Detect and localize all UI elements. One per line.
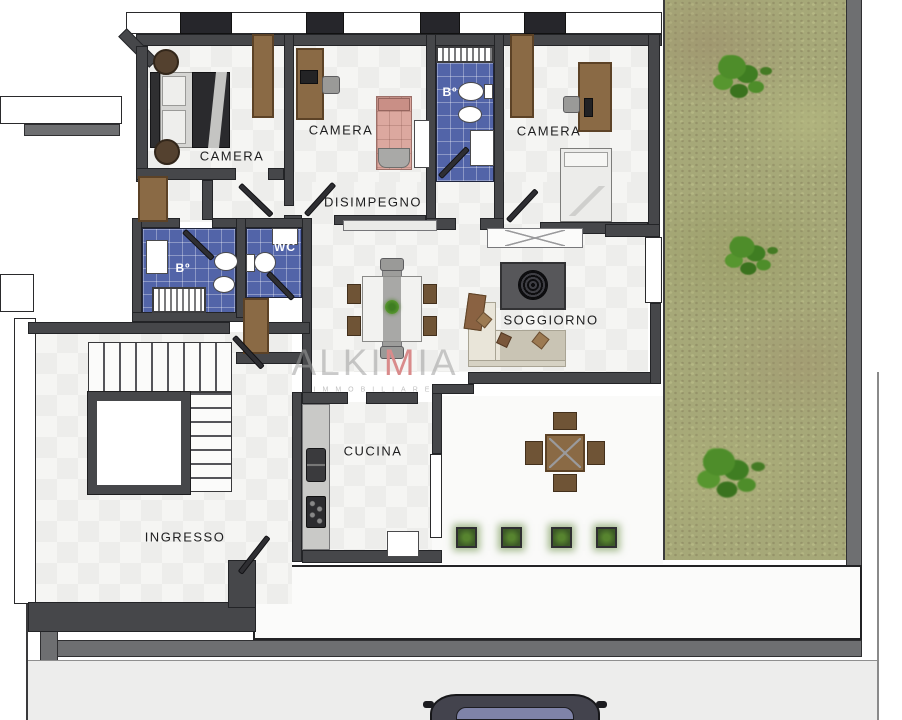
- planter: [456, 527, 477, 548]
- wall-camera3-right: [648, 34, 660, 232]
- desk-chair: [563, 96, 580, 113]
- outdoor-chair: [553, 474, 577, 492]
- staircase-upper-flight: [88, 342, 232, 392]
- bidet-bagno1: [458, 106, 482, 123]
- wall-bagno1-camera3: [494, 34, 504, 224]
- window-kitchen-right: [430, 454, 442, 538]
- wall-bagni-top-b: [212, 218, 312, 228]
- room-label-bagno-1: Bº: [442, 85, 457, 99]
- planter: [501, 527, 522, 548]
- room-label-camera-1: CAMERA: [200, 149, 265, 164]
- bed-pillow: [564, 152, 608, 167]
- nightstand-round: [153, 49, 179, 75]
- stair-well: [88, 392, 190, 494]
- desk-chair: [322, 76, 340, 94]
- garden-shrub: [729, 236, 754, 258]
- desk-camera2: [296, 48, 324, 120]
- terrace-band: [253, 565, 862, 640]
- room-label-cucina: CUCINA: [344, 444, 403, 459]
- dining-chair: [347, 316, 361, 336]
- toilet-wc: [254, 252, 276, 273]
- window-camera-1: [180, 12, 232, 34]
- outdoor-chair: [553, 412, 577, 430]
- car-mirror-left: [423, 701, 434, 708]
- bed-pillow: [162, 76, 186, 106]
- dining-chair: [347, 284, 361, 304]
- room-label-disimpegno: DISIMPEGNO: [324, 195, 422, 210]
- sink-bagno2: [146, 240, 168, 274]
- window-bagno-1: [420, 12, 460, 34]
- room-label-camera-3: CAMERA: [517, 124, 582, 139]
- watermark-brand-accent: M: [384, 342, 418, 383]
- garden: [663, 0, 846, 560]
- room-label-bagno-2: Bº: [175, 261, 190, 275]
- bed-pink-blanket: [378, 148, 410, 168]
- dining-chair: [423, 316, 437, 336]
- nightstand-round: [154, 139, 180, 165]
- toilet-bagno1: [458, 82, 484, 101]
- car-windshield: [456, 707, 574, 720]
- wall-camera1-bottom-stub: [268, 168, 284, 180]
- garden-shrub: [718, 55, 746, 79]
- property-line-right: [877, 372, 879, 720]
- cabinet-camera1: [138, 176, 168, 222]
- planter: [551, 527, 572, 548]
- cabinet-camera2: [414, 120, 430, 168]
- wall-kitchen-left: [292, 392, 302, 562]
- window-camera-3: [524, 12, 566, 34]
- dining-chair: [423, 284, 437, 304]
- wall-ingresso-top-b: [262, 322, 310, 334]
- car-mirror-right: [596, 701, 607, 708]
- room-label-wc: WC: [274, 240, 296, 254]
- kitchen-stove: [306, 496, 326, 528]
- wall-soggiorno-bottom: [468, 372, 660, 384]
- wardrobe-camera3: [510, 34, 534, 118]
- bed-fold: [566, 186, 608, 216]
- wall-step-right: [605, 224, 660, 237]
- wall-kitchen-top-b: [366, 392, 418, 404]
- window-soggiorno-right: [645, 237, 662, 303]
- wall-camera1-camera2: [284, 34, 294, 206]
- window-camera-2: [306, 12, 344, 34]
- exterior-stub-midleft: [0, 274, 34, 312]
- toilet-bagno2: [214, 252, 238, 271]
- outdoor-table-x: [549, 438, 581, 468]
- wall-ingresso-top-a: [28, 322, 230, 334]
- sofa-backrest: [468, 360, 566, 367]
- staircase-right-flight: [188, 392, 232, 492]
- watermark-brand: ALKIMIA: [291, 342, 458, 384]
- wall-bagno2-bottom: [132, 312, 246, 322]
- watermark-brand-pre: ALKI: [291, 342, 383, 383]
- room-label-camera-2: CAMERA: [309, 123, 374, 138]
- monitor-camera3: [584, 98, 593, 117]
- kitchen-sink: [306, 448, 326, 482]
- wall-soggiorno-right: [650, 303, 661, 384]
- wall-soggiorno-bottom-stub: [432, 384, 474, 394]
- cabinet-bagno1: [470, 130, 494, 166]
- console-x-detail: [505, 230, 565, 246]
- bed-pink-pillow: [378, 98, 410, 111]
- outdoor-chair: [525, 441, 543, 465]
- boundary-wall-bottom: [56, 640, 862, 657]
- computer-camera2: [300, 70, 318, 84]
- wardrobe-camera1: [252, 34, 274, 118]
- kitchen-appliance: [387, 531, 419, 557]
- watermark-brand-post: IA: [418, 342, 459, 383]
- wall-kitchen-top-a: [302, 392, 348, 404]
- table-plant: [385, 300, 399, 314]
- dining-chair-head: [380, 258, 404, 271]
- exterior-wall-left: [14, 318, 36, 604]
- room-label-soggiorno: SOGGIORNO: [503, 313, 598, 328]
- hall-shelf: [343, 220, 437, 231]
- wall-kitchen-right: [432, 392, 442, 454]
- washing-machine-bagno2: [152, 287, 206, 313]
- planter: [596, 527, 617, 548]
- exterior-stub-topleft: [0, 96, 122, 124]
- wall-hall-stub: [202, 180, 213, 220]
- boundary-wall-right: [846, 0, 862, 657]
- bed-headboard: [150, 72, 160, 148]
- exterior-stub-topleft-gray: [24, 124, 120, 136]
- toilet-tank-bagno1: [484, 84, 493, 99]
- outdoor-chair: [587, 441, 605, 465]
- wall-top-inner: [136, 34, 662, 46]
- wall-kitchen-bottom: [302, 550, 442, 563]
- desk-camera3: [578, 62, 612, 132]
- room-label-ingresso: INGRESSO: [145, 530, 226, 545]
- shower-bagno1: [436, 46, 494, 63]
- garden-shrub: [703, 448, 735, 476]
- rug-ornament: [518, 270, 548, 300]
- wall-ingresso-bottom: [28, 602, 256, 632]
- wall-camera1-left: [136, 46, 148, 182]
- watermark-subtitle: IMMOBILIARE: [314, 387, 437, 394]
- floor-plan-canvas: CAMERA CAMERA CAMERA Bº Bº WC DISIMPEGNO…: [0, 0, 902, 720]
- bidet-bagno2: [213, 276, 235, 293]
- wall-bagno2-left: [132, 218, 142, 322]
